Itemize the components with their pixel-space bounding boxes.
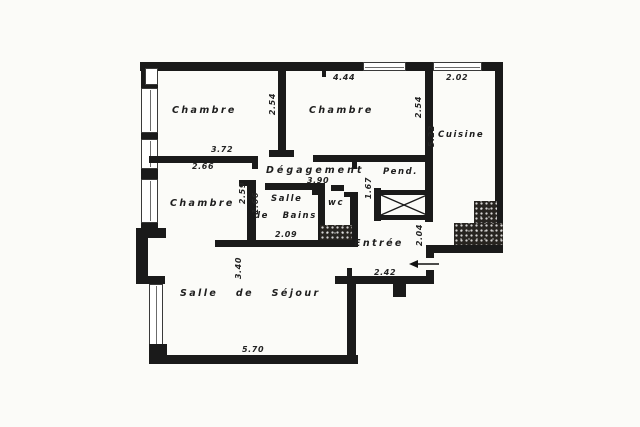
dim-entree-width: 2.42 xyxy=(374,268,396,277)
window-sejour xyxy=(149,284,163,346)
dimension-tick xyxy=(347,268,352,276)
wall-step xyxy=(141,276,165,284)
dim-penderie-width: 1.67 xyxy=(364,177,373,199)
wall-tee xyxy=(269,150,294,157)
wall-stub xyxy=(393,284,406,297)
shaft-hatch xyxy=(454,223,503,247)
wall-sejour-top xyxy=(215,240,352,247)
room-label-cuisine: Cuisine xyxy=(438,130,484,140)
dimension-tick xyxy=(322,71,326,77)
room-label-chambre-top-left: Chambre xyxy=(172,105,237,116)
room-label-wc: wc xyxy=(328,198,344,208)
wall-shaft-bottom xyxy=(426,245,503,253)
dim-top-span: 4.44 xyxy=(333,73,355,82)
room-label-entree: Entrée xyxy=(354,238,404,249)
room-label-chambre-top-middle: Chambre xyxy=(309,105,374,116)
window-left-3 xyxy=(141,179,158,223)
room-label-degagement: Dégagement xyxy=(266,165,364,176)
dim-bains-outer-depth: 2.59 xyxy=(238,182,247,204)
wall-chambre-divider xyxy=(278,67,286,152)
dim-divider-depth: 2.54 xyxy=(268,93,277,115)
room-label-chambre-left: Chambre xyxy=(170,198,235,209)
dim-cuisine-depth: 5.22 xyxy=(427,125,436,147)
dim-bains-width: 2.09 xyxy=(275,230,297,239)
entrance-arrow-icon xyxy=(408,257,440,271)
wall-bottom xyxy=(150,355,358,364)
dimension-tick xyxy=(252,163,258,169)
wall-pillar xyxy=(145,68,158,85)
wall-corridor-top xyxy=(313,155,427,162)
closet-left-bar xyxy=(374,188,381,221)
window-left-2 xyxy=(141,139,158,169)
room-label-penderie: Pend. xyxy=(383,167,418,177)
dim-chambre-middle-depth: 2.54 xyxy=(414,96,423,118)
wall-top xyxy=(140,62,363,71)
closet-cross-icon xyxy=(381,195,427,215)
wall-wc-stub xyxy=(331,185,344,191)
dim-chambre3-width: 2.66 xyxy=(192,162,214,171)
dim-cuisine-width: 2.02 xyxy=(446,73,468,82)
closet-bottom-rail xyxy=(381,215,427,220)
dim-degagement-length: 3.90 xyxy=(307,176,329,185)
wall-sejour-right xyxy=(347,276,356,364)
dim-bains-inner-depth: 1.66 xyxy=(251,192,260,214)
dim-sejour-width: 5.70 xyxy=(242,345,264,354)
dim-sejour-depth: 3.40 xyxy=(234,257,243,279)
window-top-1 xyxy=(363,62,406,71)
floor-plan: Chambre Chambre Chambre Cuisine Dégageme… xyxy=(0,0,640,427)
room-label-sejour: Salle de Séjour xyxy=(180,288,321,299)
wall-entree-bottom xyxy=(335,276,433,284)
room-label-bains-2: de Bains xyxy=(254,211,317,221)
dim-chambre1-width: 3.72 xyxy=(211,145,233,154)
dim-entree-depth: 2.04 xyxy=(415,224,424,246)
window-left-1 xyxy=(141,88,158,133)
room-label-bains-1: Salle xyxy=(271,194,302,204)
window-top-2 xyxy=(433,62,482,71)
wall-entree-right xyxy=(426,270,434,284)
